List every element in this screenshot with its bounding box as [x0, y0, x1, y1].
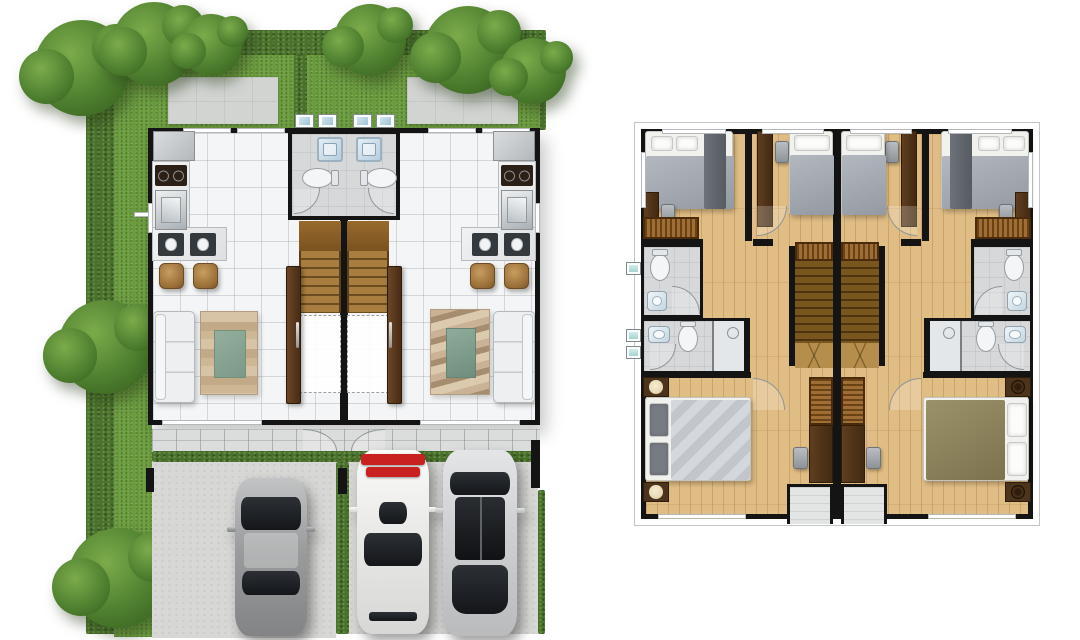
upper-stair-run-a: [795, 261, 833, 343]
shower-stall-b: [930, 321, 962, 371]
balcony-b: [841, 484, 887, 524]
master-bed-b-blanket: [926, 400, 1005, 480]
master-bed-a-pillow-2: [649, 442, 669, 476]
nightstand-speaker-b2: [1005, 482, 1031, 502]
party-wall-upper: [833, 129, 841, 519]
corner-bed-a-throw: [704, 132, 726, 209]
washbasin-upper-a: [647, 291, 667, 311]
corner-bed-b-throw: [950, 132, 972, 209]
upper-window-bottom-b: [928, 514, 1016, 519]
toilet-lower-a: [678, 325, 698, 352]
wall-hall-top-a: [753, 239, 773, 246]
corner-bed-b-pillow-2: [1003, 136, 1025, 151]
wall-bedrooms-divider-b: [922, 129, 929, 241]
master-chair-a: [793, 447, 808, 469]
wall-hall-top-b: [901, 239, 921, 246]
wall-bedrooms-divider-a: [745, 129, 752, 241]
single-bed-b: [841, 131, 885, 215]
nightstand-lamp-a1: [643, 377, 669, 397]
toilet-upper-b: [1004, 254, 1024, 281]
single-bed-a-blanket: [790, 155, 834, 215]
toilet-tank-lower-a: [680, 321, 696, 327]
toilet-upper-a: [650, 254, 670, 281]
toilet-tank-upper-b: [1006, 249, 1022, 256]
upper-floor-plan: [0, 0, 1080, 640]
upper-window-top-b1: [850, 129, 912, 134]
washbasin-upper-b: [1007, 291, 1027, 311]
stair-wardrobe-a: [795, 242, 833, 261]
master-bed-b-pillow-2: [1007, 442, 1027, 476]
master-bed-b: [923, 397, 1029, 481]
upper-window-left: [641, 152, 646, 208]
upper-window-top-a1: [662, 129, 726, 134]
master-bed-b-pillow-1: [1007, 403, 1027, 437]
master-desk-b: [841, 425, 865, 483]
corner-bed-a-pillow-1: [651, 136, 673, 151]
stair-foot-b: [841, 343, 879, 368]
corner-bedroom-wardrobe-b: [975, 217, 1031, 239]
master-wardrobe-b: [841, 377, 865, 425]
upper-window-bottom-a: [658, 514, 746, 519]
single-bed-b-pillow: [846, 135, 882, 151]
ac-condenser-2: [626, 329, 641, 342]
nightstand-speaker-b1: [1005, 377, 1031, 397]
washbasin-lower-b: [1004, 326, 1026, 343]
wall-stair-side-b: [879, 246, 885, 366]
master-wardrobe-a: [809, 377, 833, 425]
upper-window-top-b2: [948, 129, 1012, 134]
single-bed-a-pillow: [794, 135, 830, 151]
master-chair-b: [866, 447, 881, 469]
shower-stall-a: [712, 321, 744, 371]
ac-condenser-3: [626, 346, 641, 359]
upper-window-right: [1028, 152, 1033, 208]
single-bed-a: [789, 131, 833, 215]
floor-plans-canvas: [0, 0, 1080, 640]
toilet-tank-lower-b: [978, 321, 994, 327]
upper-stair-run-b: [841, 261, 879, 343]
toilet-lower-b: [976, 325, 996, 352]
stair-wardrobe-b: [841, 242, 879, 261]
master-bed-a-duvet: [671, 400, 750, 480]
toilet-tank-upper-a: [652, 249, 668, 256]
stair-foot-a: [795, 343, 833, 368]
middle-bedroom-chair-a: [775, 141, 789, 163]
upper-window-top-a2: [762, 129, 824, 134]
washbasin-lower-a: [648, 326, 670, 343]
ac-condenser-1: [626, 262, 641, 275]
single-bed-b-blanket: [842, 155, 886, 215]
master-bed-a: [645, 397, 751, 481]
master-desk-a: [809, 425, 833, 483]
middle-bedroom-chair-b: [885, 141, 899, 163]
balcony-a: [787, 484, 833, 524]
corner-bedroom-wardrobe-a: [643, 217, 699, 239]
nightstand-lamp-a2: [643, 482, 669, 502]
corner-bed-a-pillow-2: [676, 136, 698, 151]
master-bed-a-pillow-1: [649, 403, 669, 437]
corner-bed-b-pillow-1: [978, 136, 1000, 151]
